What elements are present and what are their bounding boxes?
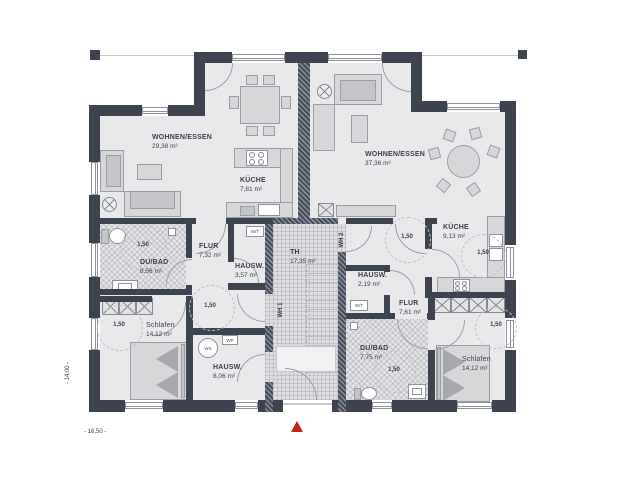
room-label-hausw2: HAUSW. 2,19 m² <box>358 272 387 289</box>
room-label-schlafen1: Schlafen 14,12 m² <box>146 322 175 339</box>
wall <box>163 400 235 412</box>
room-label-dubad2: DU/BAD 7,75 m² <box>360 345 388 362</box>
stairwell-wall <box>265 326 273 352</box>
room-area: 8,06 m² <box>213 373 242 381</box>
washer-dryer-label: W/T <box>355 303 363 308</box>
kitchen1-tall-unit <box>280 148 293 204</box>
window <box>91 162 98 195</box>
room-label-flur1: FLUR 7,32 m² <box>199 243 221 260</box>
unit-label-wh1: WH 1 <box>278 303 284 318</box>
bed-1-headboard <box>181 344 185 398</box>
room-name: HAUSW. <box>358 272 387 281</box>
wall <box>427 313 435 319</box>
toilet-2-tank <box>354 388 361 400</box>
washer-dryer-2: W/T <box>350 300 368 311</box>
water-storage-label: WS <box>204 346 211 351</box>
clearance-circle <box>385 217 431 263</box>
wall <box>428 350 435 412</box>
room-area: 29,38 m² <box>152 143 212 151</box>
clearance-label: 1,50 <box>490 322 502 328</box>
side-table <box>351 115 368 143</box>
clearance-label: 1,50 <box>137 242 149 248</box>
burner <box>249 152 255 158</box>
clearance-circle <box>475 307 517 349</box>
entrance-threshold <box>283 403 332 405</box>
drain <box>168 228 176 236</box>
room-label-kueche2: KÜCHE 9,13 m² <box>443 224 469 241</box>
round-dining-table <box>447 145 480 178</box>
drain <box>350 322 358 330</box>
room-name: KÜCHE <box>443 224 469 233</box>
wall <box>89 105 142 116</box>
room-name: HAUSW. <box>235 263 264 272</box>
room-area: 17,35 m² <box>290 258 316 266</box>
unit-label-wh2: WH 2 <box>339 233 345 248</box>
bed-2-headboard <box>437 347 441 400</box>
washer-dryer-1: W/T <box>246 226 264 237</box>
room-name: TH <box>290 249 316 258</box>
room-label-flur2: FLUR 7,61 m² <box>399 300 421 317</box>
window <box>372 402 392 409</box>
room-name: KÜCHE <box>240 177 266 186</box>
chair <box>229 96 239 109</box>
window <box>506 247 514 278</box>
stairwell-wall <box>338 252 346 412</box>
bed-1-pillow <box>156 346 178 372</box>
post <box>90 50 100 60</box>
wall <box>228 224 234 262</box>
room-area: 7,61 m² <box>399 309 421 317</box>
window <box>91 243 98 277</box>
room-name: DU/BAD <box>140 259 168 268</box>
burner <box>258 159 264 165</box>
wall <box>346 313 395 319</box>
room-area: 14,12 m² <box>146 331 175 339</box>
wall <box>100 289 192 295</box>
kitchen2-counter-bottom <box>437 277 505 293</box>
room-label-th: TH 17,35 m² <box>290 249 316 266</box>
room-area: 7,32 m² <box>199 252 221 260</box>
entrance-marker-icon <box>291 421 303 432</box>
room-label-kueche1: KÜCHE 7,81 m² <box>240 177 266 194</box>
wall <box>285 52 328 63</box>
plant-icon <box>102 197 117 212</box>
chair <box>281 96 291 109</box>
chair <box>263 75 275 85</box>
clearance-label: 1,50 <box>204 303 216 309</box>
window <box>142 107 168 114</box>
window <box>232 54 285 61</box>
chair <box>263 126 275 136</box>
wall <box>186 224 192 258</box>
wall <box>505 101 516 245</box>
sofa-3-cushion <box>340 80 376 101</box>
stairwell-wall <box>265 224 273 294</box>
sofa-1-cushion <box>106 155 121 187</box>
washbasin-2-bowl <box>412 388 422 395</box>
stairwell-wall <box>273 218 338 224</box>
window <box>457 402 492 409</box>
cabinet <box>318 203 334 217</box>
window <box>328 54 382 61</box>
dimension-width: - 16,50 - <box>84 429 106 435</box>
room-name: HAUSW. <box>213 364 242 373</box>
room-label-wohnen1: WOHNEN/ESSEN 29,38 m² <box>152 134 212 151</box>
clearance-circle <box>97 305 143 351</box>
post <box>518 50 527 59</box>
room-name: Schlafen <box>462 356 491 365</box>
room-name: WOHNEN/ESSEN <box>365 151 425 160</box>
overhang-line <box>100 55 194 56</box>
clearance-label: 1,50 <box>113 322 125 328</box>
toilet-2 <box>361 387 377 400</box>
dimension-depth: - 14,00 - <box>65 362 71 384</box>
floor-plan: W/T W/T WS WP MSA <box>0 0 640 480</box>
wall <box>492 400 516 412</box>
room-name: FLUR <box>399 300 421 309</box>
room-name: DU/BAD <box>360 345 388 354</box>
bed-2-pillow <box>443 375 465 401</box>
burner <box>462 286 467 291</box>
chair <box>246 75 258 85</box>
room-area: 3,57 m² <box>235 272 264 280</box>
chair <box>246 126 258 136</box>
heat-pump: WP <box>222 335 238 345</box>
room-name: Schlafen <box>146 322 175 331</box>
burner <box>249 159 255 165</box>
room-area: 7,75 m² <box>360 354 388 362</box>
wall <box>411 101 447 112</box>
room-area: 37,36 m² <box>365 160 425 168</box>
window <box>235 402 258 409</box>
wall <box>194 52 232 63</box>
room-label-schlafen2: Schlafen 14,12 m² <box>462 356 491 373</box>
toilet-1-tank <box>101 229 109 244</box>
wardrobe <box>433 297 451 313</box>
washer-dryer-label: W/T <box>251 229 259 234</box>
sideboard-2 <box>336 205 396 217</box>
room-label-hausw3: HAUSW. 8,06 m² <box>213 364 242 381</box>
overhang-line <box>422 55 518 56</box>
wall <box>89 277 100 318</box>
kitchen1-sink <box>258 204 280 216</box>
wall <box>100 218 196 224</box>
room-label-dubad1: DU/BAD 8,56 m² <box>140 259 168 276</box>
room-area: 8,56 m² <box>140 268 168 276</box>
clearance-label: 1,50 <box>388 367 400 373</box>
room-label-wohnen2: WOHNEN/ESSEN 37,36 m² <box>365 151 425 168</box>
burner <box>455 286 460 291</box>
wall <box>89 400 125 412</box>
room-area: 2,19 m² <box>358 281 387 289</box>
wall <box>425 292 505 298</box>
room-name: FLUR <box>199 243 221 252</box>
heat-pump-label: WP <box>226 338 233 343</box>
room-area: 14,12 m² <box>462 365 491 373</box>
room-label-hausw1: HAUSW. 3,57 m² <box>235 263 264 280</box>
dining-table-1 <box>240 86 280 124</box>
wall <box>346 218 393 224</box>
wardrobe <box>451 297 469 313</box>
plant-icon <box>317 84 332 99</box>
sofa-2-cushion <box>130 191 175 209</box>
window <box>447 103 500 110</box>
window <box>125 402 163 409</box>
water-storage: WS <box>198 338 218 358</box>
wall <box>100 296 152 302</box>
kitchen1-appliance <box>240 206 255 216</box>
stairwell-wall <box>265 382 273 412</box>
bed-1-pillow <box>156 372 178 398</box>
coffee-table-1 <box>137 164 162 180</box>
burner <box>258 152 264 158</box>
room-area: 7,81 m² <box>240 186 266 194</box>
wall <box>89 195 100 243</box>
clearance-label: 1,50 <box>401 234 413 240</box>
room-name: WOHNEN/ESSEN <box>152 134 212 143</box>
clearance-label: 1,50 <box>477 250 489 256</box>
room-area: 9,13 m² <box>443 233 469 241</box>
sideboard-1 <box>313 104 335 151</box>
wall <box>392 400 457 412</box>
party-wall <box>298 63 310 224</box>
